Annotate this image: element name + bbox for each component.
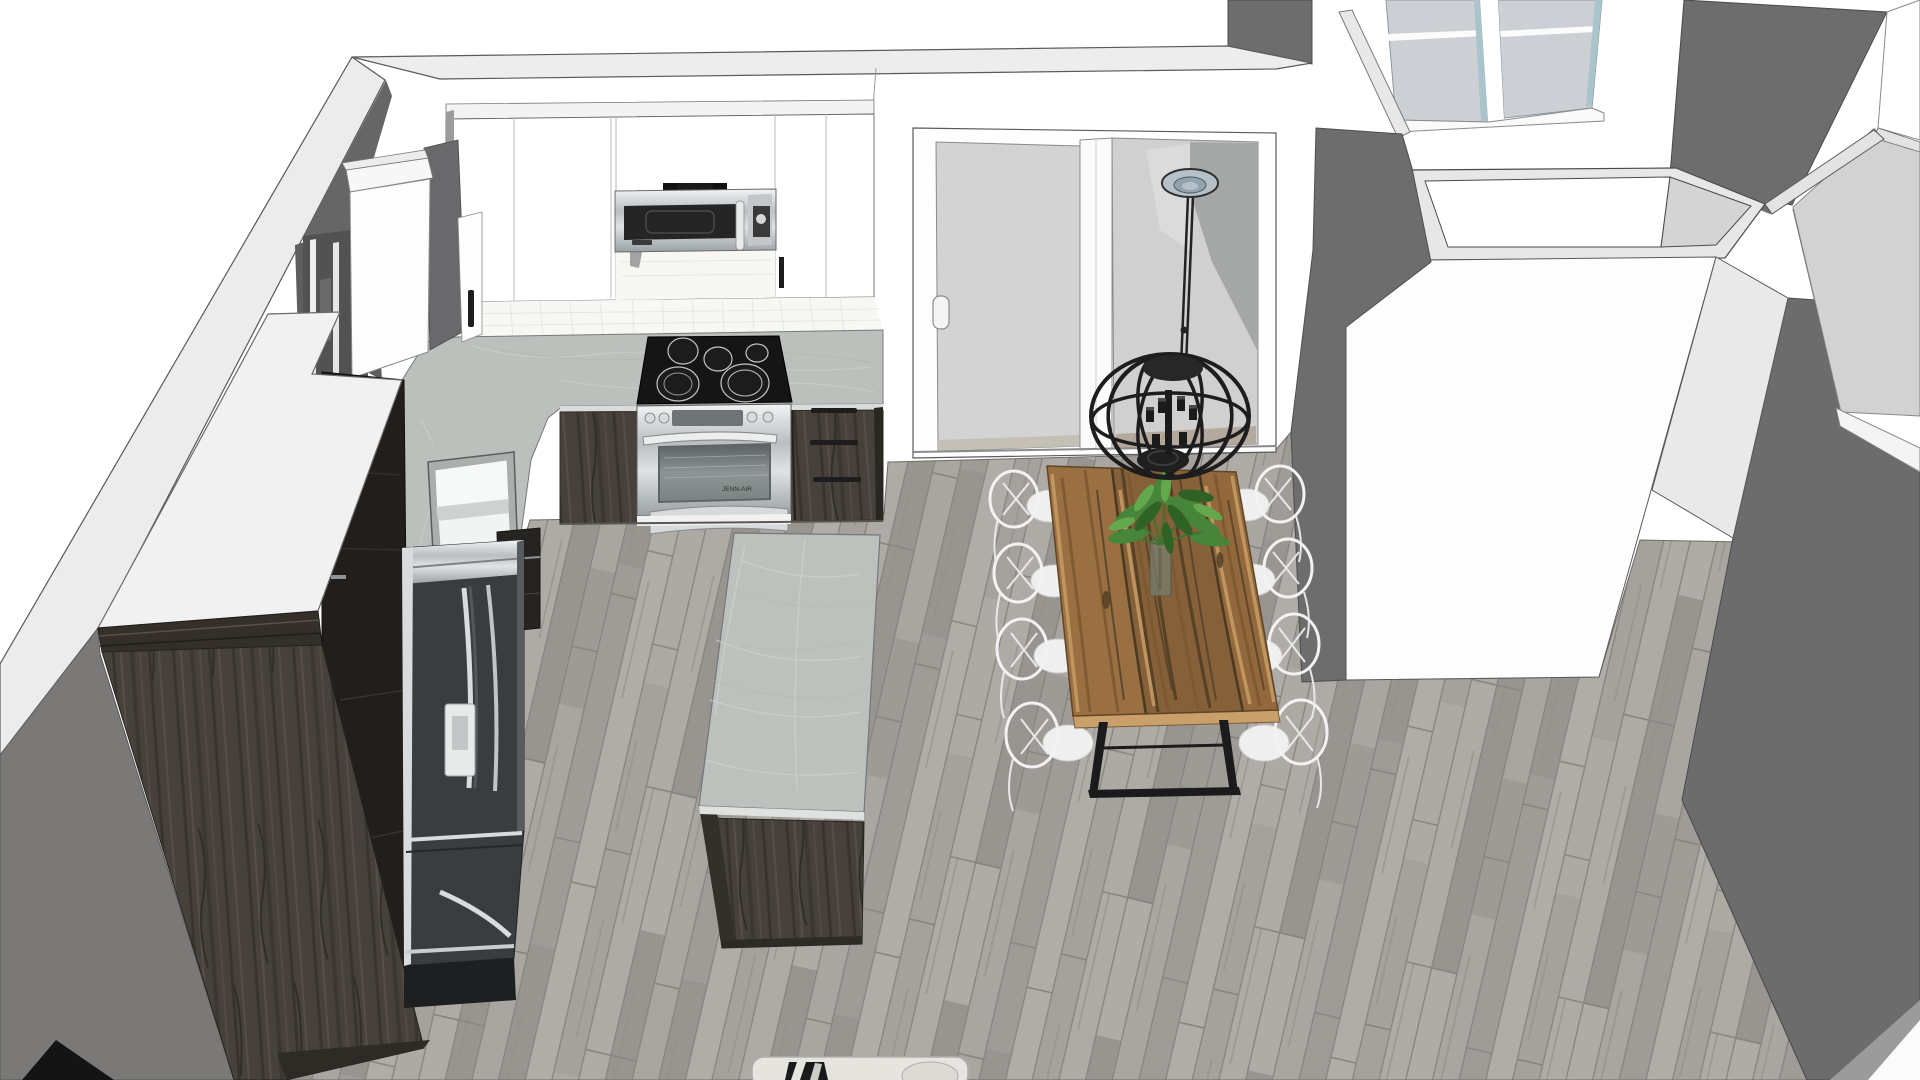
- svg-text:JENN-AIR: JENN-AIR: [722, 486, 752, 493]
